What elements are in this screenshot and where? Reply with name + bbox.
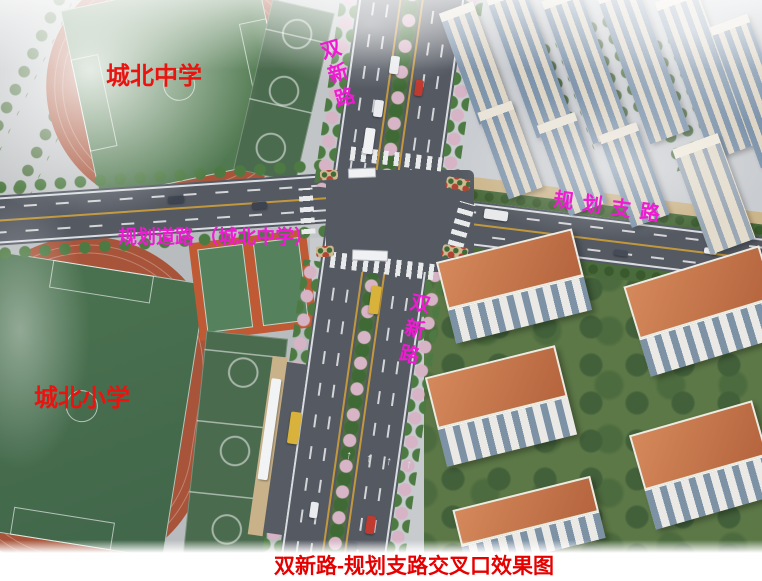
caption-bar: 双新路-规划支路交叉口效果图 — [0, 553, 762, 581]
label-elementary-school: 城北小学 — [34, 378, 130, 413]
car — [252, 201, 267, 209]
caption-fade — [0, 540, 762, 553]
pavement-marking-box — [352, 249, 388, 261]
caption-title: 双新路-规划支路交叉口效果图 — [0, 553, 762, 581]
car — [168, 195, 184, 203]
label-planned-road-west: 规划道路 （城北中学） — [118, 222, 313, 249]
pavement-marking-box — [348, 168, 376, 179]
tennis-court — [197, 244, 253, 333]
corner-island — [320, 169, 339, 180]
label-middle-school: 城北中学 — [106, 56, 202, 91]
intersection-rendering: ↑ ↑ ↑ ↑ 城北中学 城北小学 规划道路 （城北中学） 规划支路 双新路 双… — [0, 0, 762, 581]
corner-island — [316, 245, 335, 257]
